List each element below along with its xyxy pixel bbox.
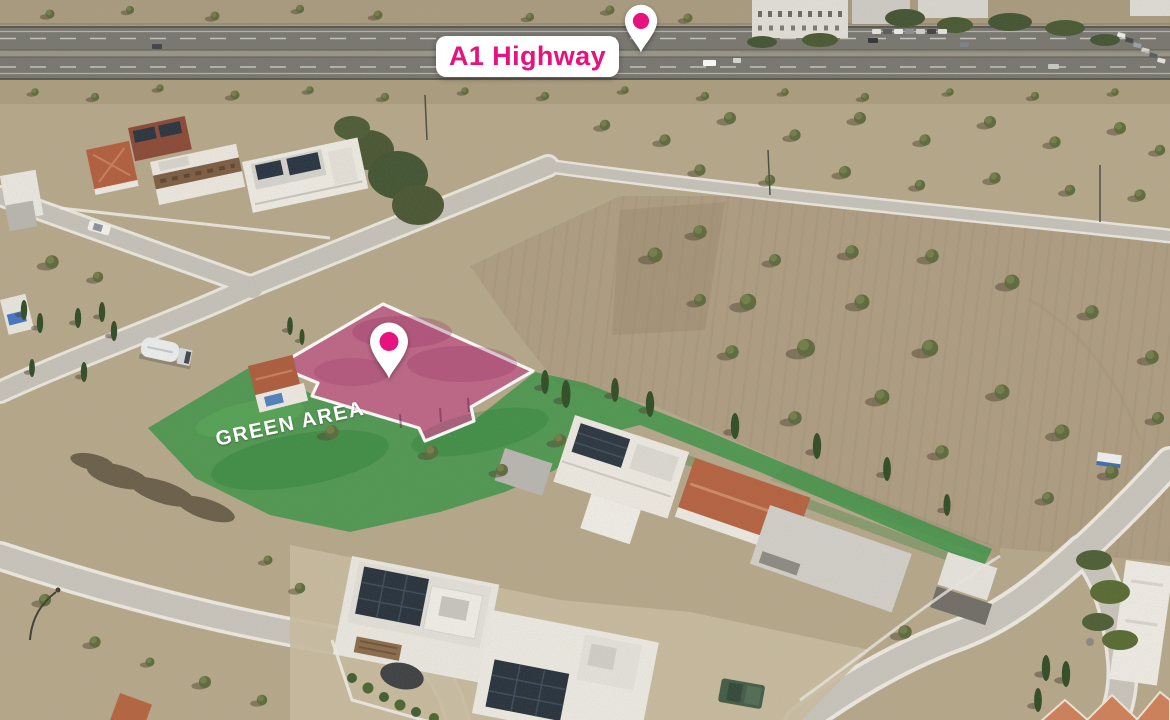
aerial-photo-base — [0, 0, 1170, 720]
photo-grain — [0, 0, 1170, 720]
map-pin-icon — [622, 4, 660, 54]
aerial-photo: A1 Highway GREEN AREA — [0, 0, 1170, 720]
plot-pin-icon — [366, 322, 412, 380]
a1-highway-label: A1 Highway — [436, 36, 619, 77]
map-pin-icon — [366, 322, 412, 380]
highway-pin-icon — [622, 4, 660, 54]
a1-highway-label-text: A1 Highway — [449, 41, 606, 72]
